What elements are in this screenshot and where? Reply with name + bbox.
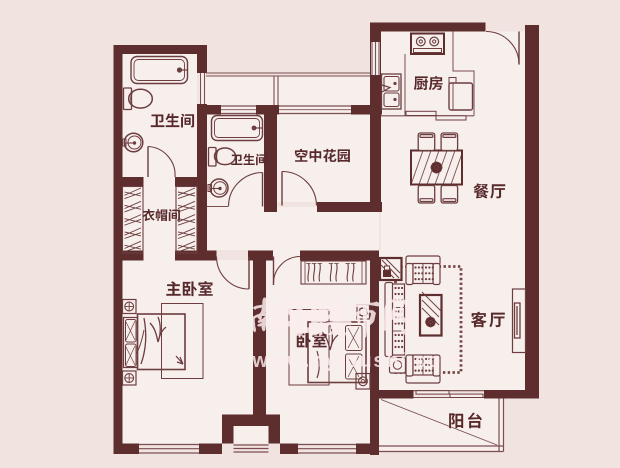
svg-text:www.nyloushi.com: www.nyloushi.com (251, 350, 461, 372)
